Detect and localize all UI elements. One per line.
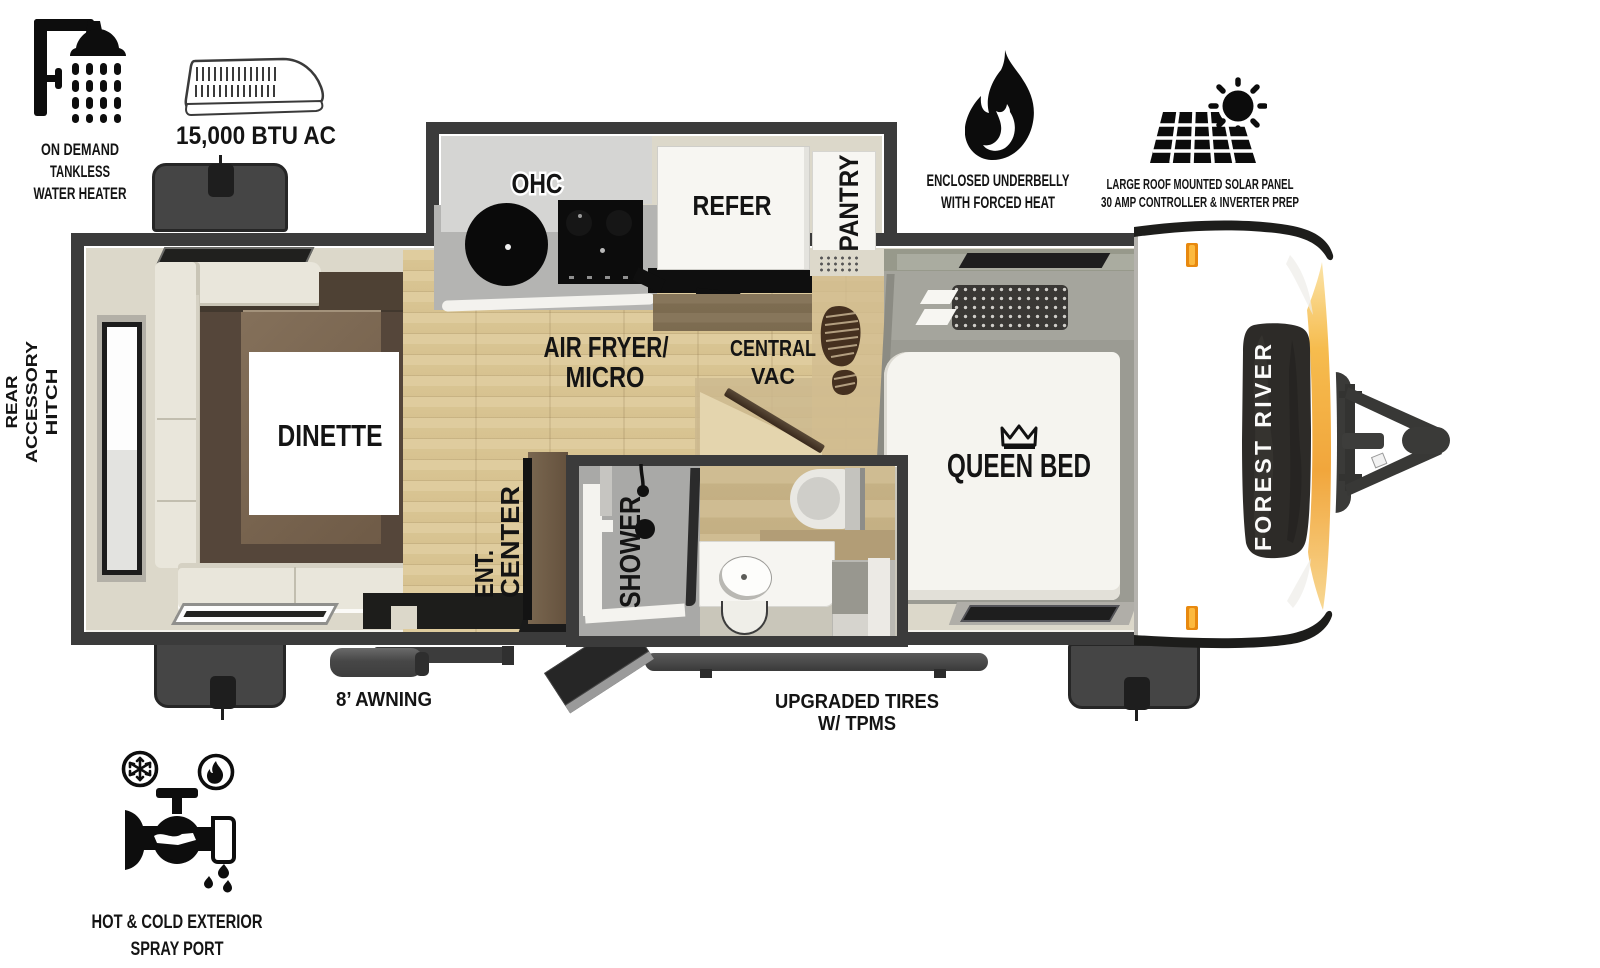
svg-text:SPRAY PORT: SPRAY PORT: [131, 939, 224, 960]
svg-text:LARGE ROOF MOUNTED SOLAR PANEL: LARGE ROOF MOUNTED SOLAR PANEL: [1107, 177, 1294, 193]
svg-text:ACCESSORY: ACCESSORY: [24, 341, 41, 463]
svg-text:REAR: REAR: [4, 375, 21, 429]
svg-text:TANKLESS: TANKLESS: [50, 162, 110, 181]
svg-text:ENCLOSED UNDERBELLY: ENCLOSED UNDERBELLY: [927, 171, 1070, 190]
svg-text:WITH FORCED HEAT: WITH FORCED HEAT: [941, 193, 1055, 212]
svg-text:MICRO: MICRO: [566, 362, 645, 394]
svg-text:AIR FRYER/: AIR FRYER/: [544, 332, 669, 364]
svg-text:15,000 BTU AC: 15,000 BTU AC: [176, 122, 336, 150]
svg-text:HOT & COLD EXTERIOR: HOT & COLD EXTERIOR: [92, 912, 263, 933]
svg-text:CENTRAL: CENTRAL: [730, 335, 816, 361]
svg-text:REFER: REFER: [693, 190, 772, 221]
svg-text:HITCH: HITCH: [44, 369, 61, 436]
svg-text:W/ TPMS: W/ TPMS: [818, 713, 896, 735]
svg-text:PANTRY: PANTRY: [834, 155, 864, 252]
svg-text:8’ AWNING: 8’ AWNING: [336, 689, 432, 711]
svg-text:CENTER: CENTER: [495, 486, 525, 598]
svg-text:SHOWER: SHOWER: [615, 496, 647, 608]
svg-text:OHC: OHC: [512, 168, 563, 199]
svg-text:QUEEN BED: QUEEN BED: [947, 447, 1091, 484]
svg-text:WATER HEATER: WATER HEATER: [34, 184, 127, 203]
svg-text:DINETTE: DINETTE: [278, 418, 383, 453]
svg-text:ON DEMAND: ON DEMAND: [41, 140, 119, 159]
svg-text:30 AMP CONTROLLER & INVERTER P: 30 AMP CONTROLLER & INVERTER PREP: [1101, 195, 1299, 211]
svg-text:VAC: VAC: [751, 363, 795, 389]
svg-text:UPGRADED TIRES: UPGRADED TIRES: [775, 691, 939, 713]
